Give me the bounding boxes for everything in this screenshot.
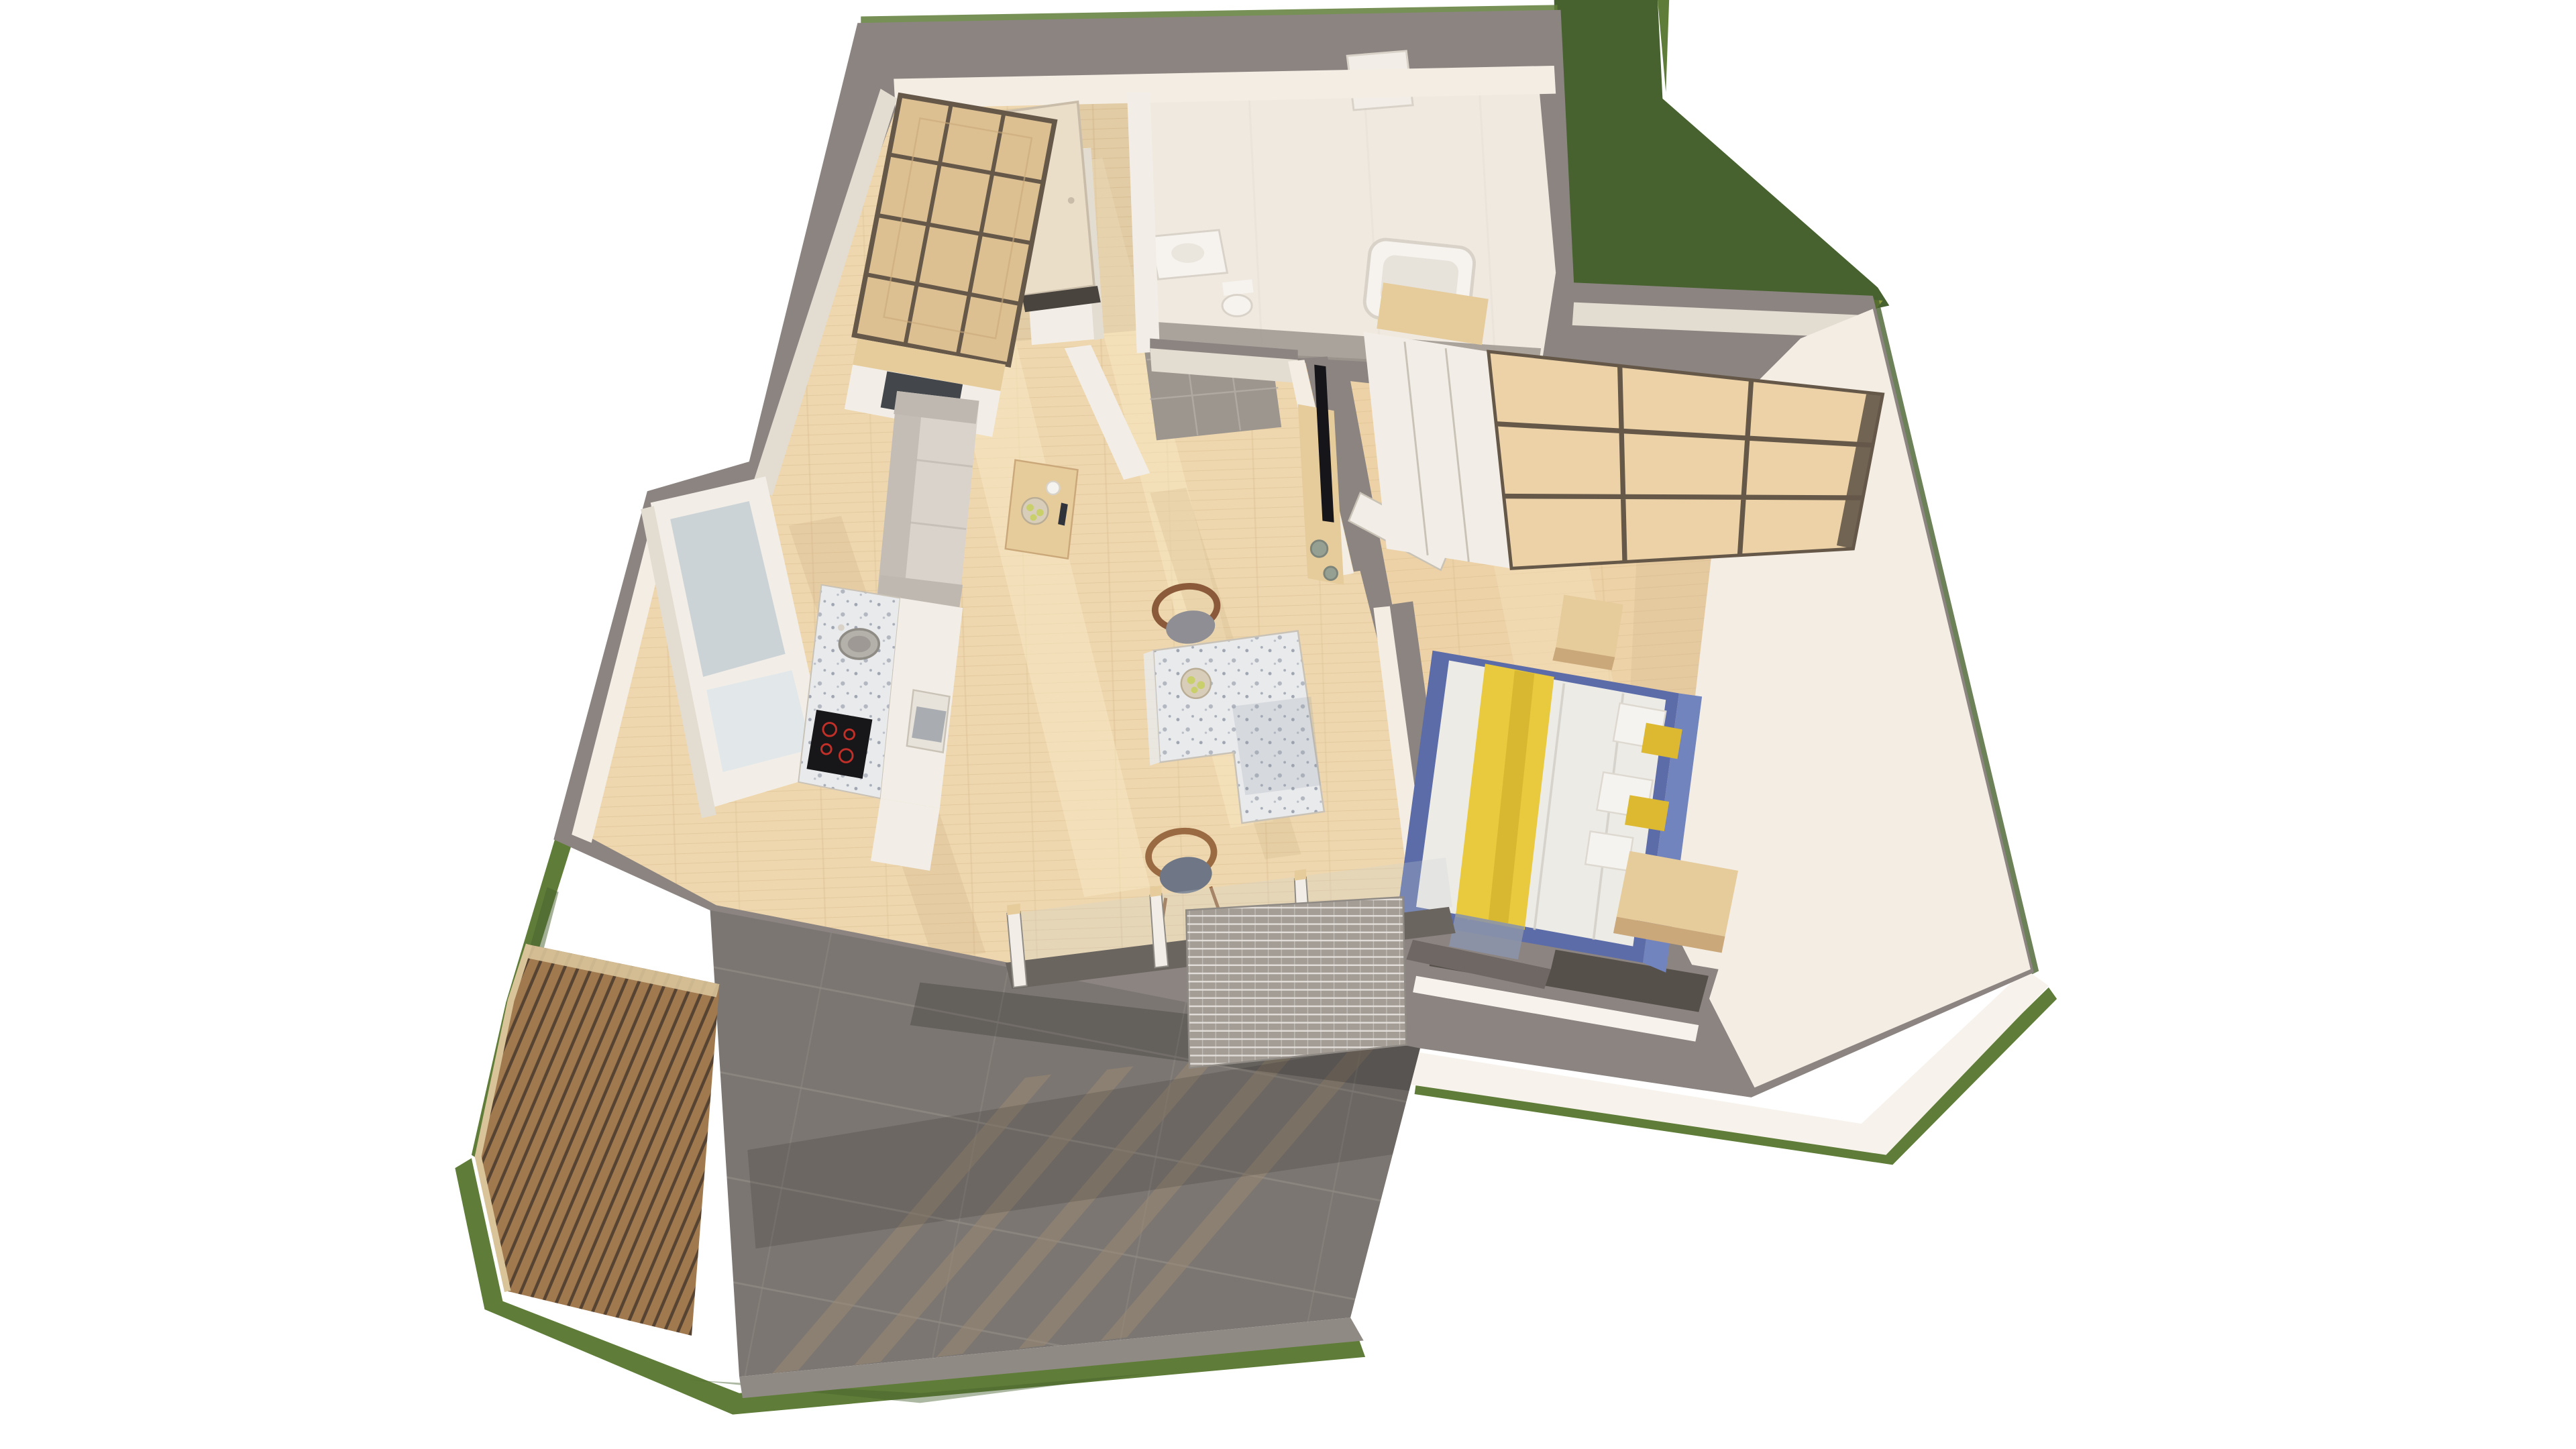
fruit [1197, 681, 1205, 689]
fruit [1026, 504, 1034, 511]
vase [1311, 541, 1327, 557]
kitchen-base-cabinet [871, 798, 940, 871]
faucet [838, 625, 845, 631]
apartment-render [0, 0, 2576, 1449]
induction-cooktop [806, 710, 872, 779]
floorplan-canvas [0, 0, 2576, 1449]
table-shadow [1232, 696, 1321, 795]
fruit [1191, 687, 1198, 694]
toilet [1222, 295, 1252, 317]
fruit [1030, 515, 1037, 521]
pillow-white [1585, 831, 1633, 871]
door-handle [1068, 197, 1075, 204]
wood-slat-screen [478, 945, 720, 1336]
candle [1046, 482, 1060, 495]
mesh-screen [1186, 897, 1406, 1068]
nightstand [1552, 595, 1623, 671]
fruit [1036, 509, 1044, 517]
post-cap [1295, 869, 1306, 881]
fruit [1187, 676, 1195, 684]
lemon-bowl [1181, 669, 1211, 698]
vase [1324, 567, 1338, 580]
bathroom-tile-wall [1150, 72, 1556, 368]
nightstand-top [1556, 595, 1623, 657]
slat-panel [478, 945, 720, 1336]
sink-drain [848, 636, 871, 652]
post-cap [1007, 904, 1020, 915]
oven-glass [912, 706, 946, 743]
washbasin-bowl [1171, 243, 1204, 262]
coffee-table [1006, 460, 1078, 559]
post-cap [1150, 885, 1161, 897]
